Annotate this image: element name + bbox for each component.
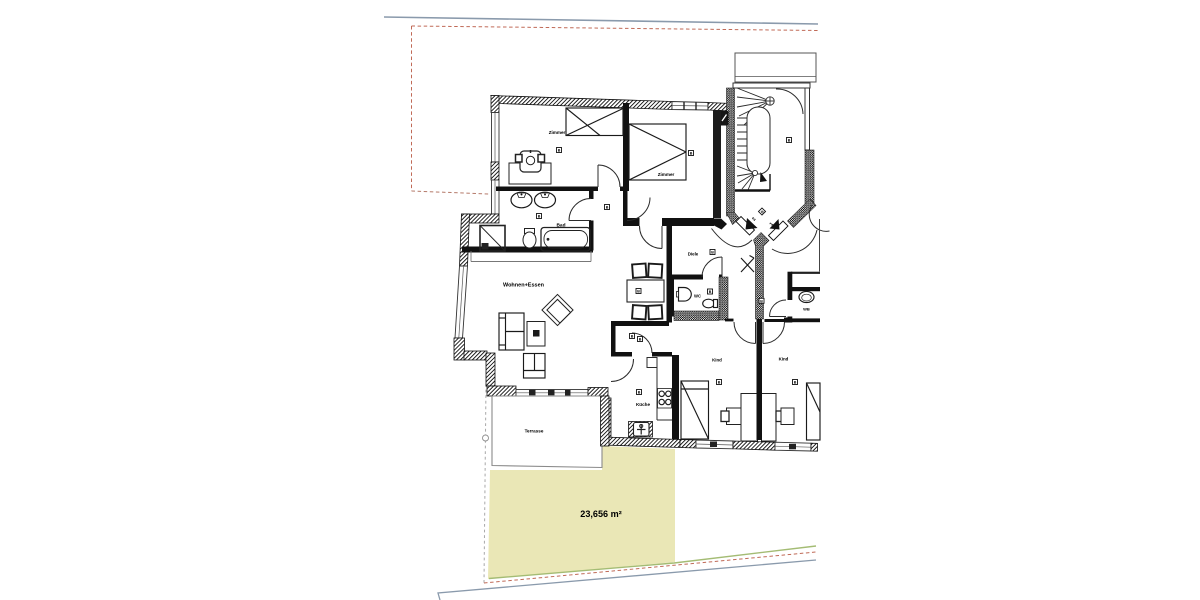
svg-text:WC: WC xyxy=(694,294,701,299)
svg-text:B: B xyxy=(538,215,541,219)
svg-text:Zimmer: Zimmer xyxy=(658,172,675,177)
svg-text:Terrasse: Terrasse xyxy=(525,429,544,434)
svg-text:B: B xyxy=(709,290,712,294)
svg-text:23,656 m²: 23,656 m² xyxy=(580,509,621,519)
svg-text:B: B xyxy=(690,152,693,156)
svg-text:B: B xyxy=(606,206,609,210)
svg-text:B: B xyxy=(637,290,640,294)
svg-text:Wohnen+Essen: Wohnen+Essen xyxy=(503,283,545,289)
svg-text:B: B xyxy=(558,149,561,153)
svg-text:B: B xyxy=(639,338,642,342)
svg-text:Kind: Kind xyxy=(779,357,789,362)
svg-text:Kind: Kind xyxy=(712,358,722,363)
svg-text:B: B xyxy=(638,391,641,395)
svg-text:B: B xyxy=(711,251,714,255)
svg-text:WB: WB xyxy=(803,307,810,312)
svg-text:Zimmer: Zimmer xyxy=(549,130,566,135)
svg-text:B: B xyxy=(788,139,791,143)
svg-text:B: B xyxy=(718,381,721,385)
svg-text:B: B xyxy=(760,300,763,304)
svg-text:B: B xyxy=(631,335,634,339)
svg-text:Diele: Diele xyxy=(688,252,699,257)
svg-text:B: B xyxy=(794,381,797,385)
svg-text:Küche: Küche xyxy=(636,402,650,407)
svg-text:2: 2 xyxy=(751,216,758,222)
